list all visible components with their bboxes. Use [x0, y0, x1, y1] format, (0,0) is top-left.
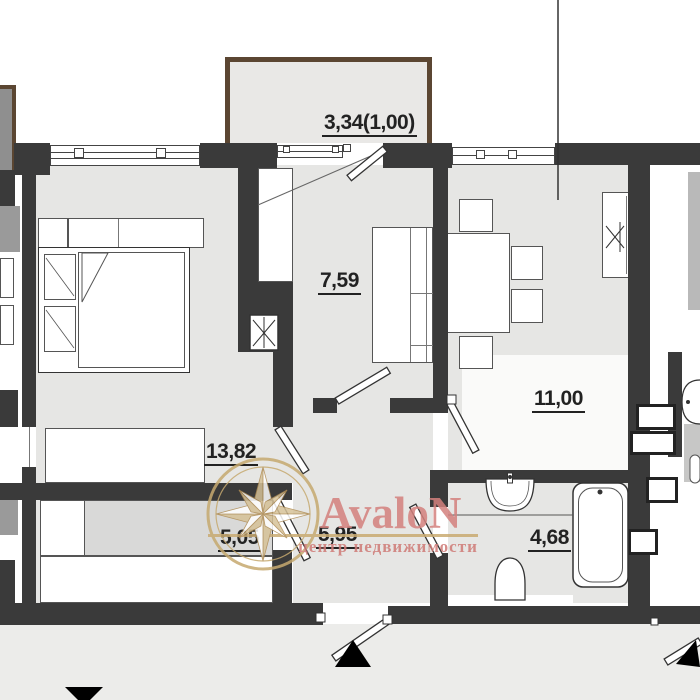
closet-section — [41, 501, 85, 555]
window-living — [452, 147, 555, 165]
floor-plan: 3,34(1,00) 7,59 11,00 13,82 5,05 5,95 4,… — [0, 0, 700, 700]
window-bedroom — [50, 145, 200, 166]
bathroom-floor-strip — [445, 595, 573, 604]
counter-line — [410, 293, 433, 294]
window-mullion — [74, 148, 84, 158]
room-label-bedroom: 13,82 — [204, 441, 258, 466]
wall-east — [628, 165, 650, 380]
wall-kitchen-living — [433, 150, 448, 398]
hallway-floor — [293, 398, 433, 603]
neighbor-sink — [682, 380, 700, 424]
neighbor-pillow — [0, 258, 14, 298]
wall-wardrobe-east — [273, 550, 292, 607]
closet — [40, 556, 273, 603]
wall-neighbor — [0, 390, 18, 427]
vent-shaft — [646, 477, 678, 503]
chair — [511, 246, 543, 280]
bedroom-wardrobe — [45, 428, 205, 483]
wall-kitchen-south — [390, 398, 448, 413]
ground-area — [0, 624, 700, 700]
room-label-hallway: 5,95 — [316, 524, 359, 549]
wall-bedroom-south — [0, 483, 292, 500]
chair — [459, 336, 493, 369]
room-label-kitchen: 7,59 — [318, 270, 361, 295]
window-mullion — [332, 146, 339, 153]
dresser-divider — [118, 219, 119, 247]
pillow — [44, 254, 76, 300]
window-mullion — [283, 146, 290, 153]
nightstand — [38, 218, 68, 248]
kitchen-cupboard — [258, 168, 293, 282]
neighbor-shaft — [688, 172, 700, 310]
kitchen-counter — [372, 227, 433, 363]
neighbor-door-line — [29, 427, 30, 467]
room-label-balcony: 3,34(1,00) — [322, 112, 417, 137]
wall-block — [238, 282, 293, 352]
wall-neighbor — [0, 170, 15, 206]
vent-shaft — [628, 529, 658, 555]
wall-bathroom-west — [430, 553, 448, 607]
dresser — [68, 218, 204, 248]
counter-line — [410, 228, 411, 362]
wall-bathroom-north — [430, 470, 630, 483]
chair — [459, 199, 493, 232]
wall-kitchen-south — [313, 398, 337, 413]
pillow — [44, 306, 76, 352]
wall-top — [555, 143, 700, 165]
window-mullion — [476, 150, 485, 159]
room-label-bathroom: 4,68 — [528, 527, 571, 552]
wall-bottom — [388, 606, 700, 624]
room-label-living: 11,00 — [532, 388, 585, 413]
door-hinge — [343, 144, 351, 152]
wall-nook — [273, 352, 293, 427]
wall-neighbor — [0, 560, 15, 603]
counter-line — [410, 345, 433, 346]
window-mullion — [508, 150, 517, 159]
dining-table — [447, 233, 510, 333]
bed-blanket — [78, 252, 185, 368]
chair — [511, 289, 543, 323]
window-mullion — [156, 148, 166, 158]
wall-bottom — [0, 603, 323, 625]
neighbor-structure — [0, 206, 20, 252]
vent-shaft — [636, 404, 676, 430]
counter-line — [426, 228, 427, 362]
room-label-wardrobe: 5,05 — [218, 527, 261, 552]
neighbor-pillow — [0, 305, 14, 345]
wall-west — [22, 165, 36, 427]
wardrobe-line — [626, 196, 627, 274]
wall-bathroom-west — [430, 483, 448, 507]
vent-shaft — [630, 431, 676, 455]
neighbor-structure — [684, 424, 700, 482]
